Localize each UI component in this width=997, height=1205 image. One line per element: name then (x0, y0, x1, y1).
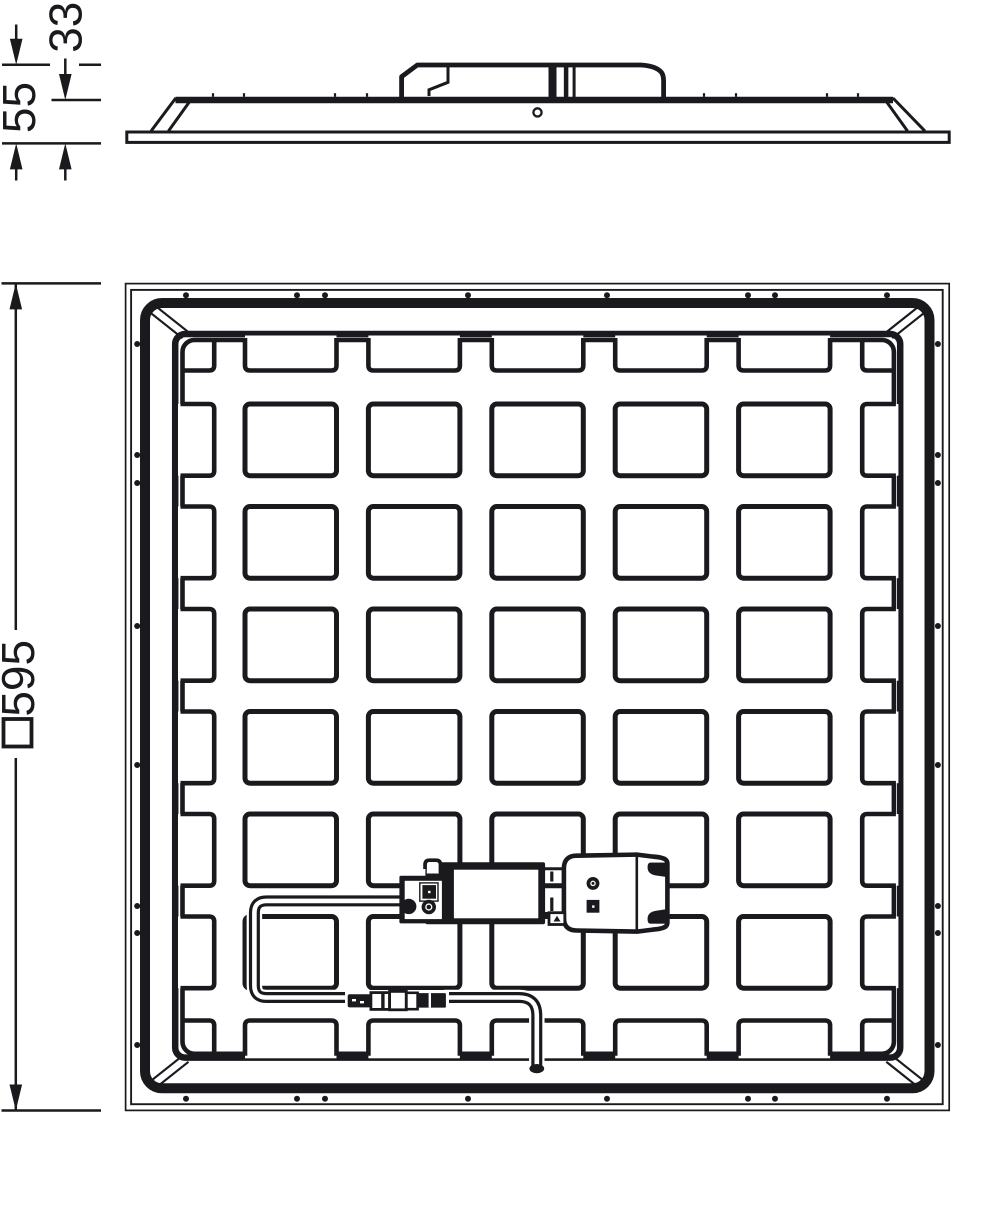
svg-text:55: 55 (0, 82, 45, 133)
svg-text:595: 595 (0, 640, 44, 717)
svg-text:33: 33 (40, 2, 92, 53)
